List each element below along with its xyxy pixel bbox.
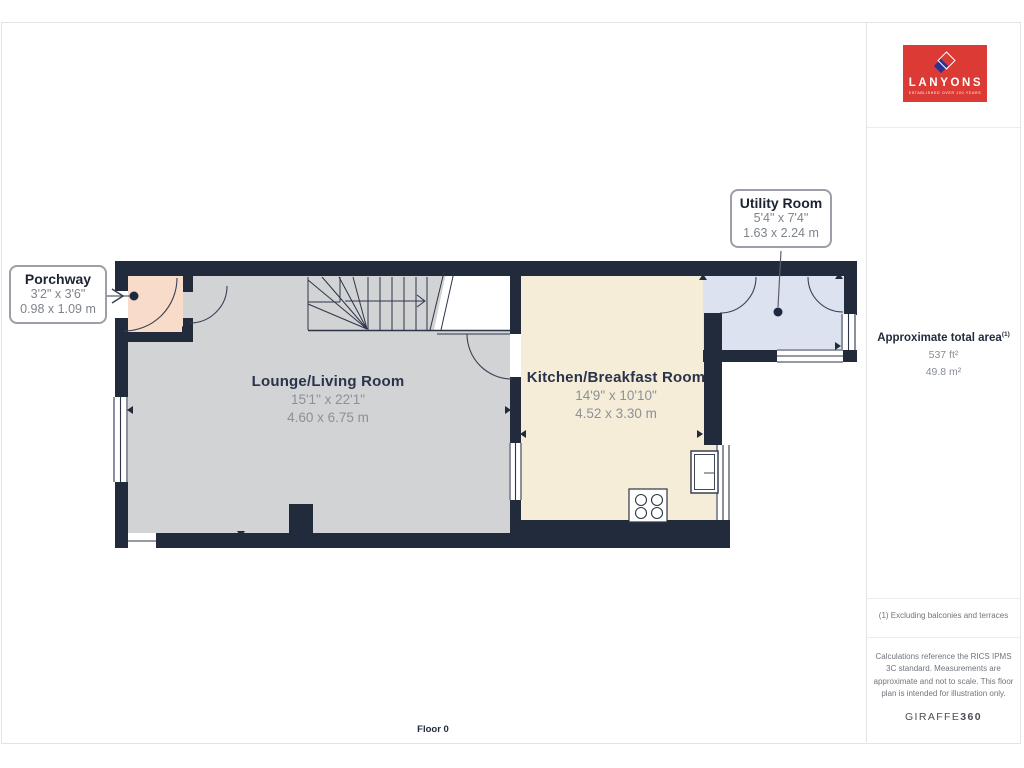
total-area-title: Approximate total area(1): [866, 331, 1021, 344]
disclaimer: Calculations reference the RICS IPMS 3C …: [873, 651, 1014, 701]
utility-wall: [843, 350, 857, 362]
stairs-void: [433, 272, 511, 331]
footnote: (1) Excluding balconies and terraces: [866, 611, 1021, 620]
callout-size-metric: 1.63 x 2.24 m: [734, 226, 828, 241]
room-name: Lounge/Living Room: [208, 373, 448, 390]
utility-wall: [703, 350, 777, 362]
total-area-ft: 537 ft²: [866, 349, 1021, 361]
callout-size-metric: 0.98 x 1.09 m: [13, 302, 103, 317]
porch-wall: [183, 272, 193, 292]
sidebar-divider: [866, 22, 867, 742]
room-size-metric: 4.52 x 3.30 m: [496, 406, 736, 422]
sidebar-rule-2: [867, 598, 1020, 599]
wall-left: [115, 482, 128, 548]
total-area-block: Approximate total area(1) 537 ft² 49.8 m…: [866, 331, 1021, 378]
callout-title: Utility Room: [734, 195, 828, 211]
callout-size-imperial: 5'4" x 7'4": [734, 211, 828, 226]
floor-label: Floor 0: [0, 724, 866, 735]
total-area-footnote-marker: (1): [1002, 331, 1010, 338]
lounge-kitchen-wall: [510, 271, 521, 334]
lounge-kitchen-wall: [510, 500, 521, 534]
giraffe360-brand: GIRAFFE360: [866, 711, 1021, 723]
wall-bottom: [510, 520, 730, 548]
room-name: Kitchen/Breakfast Room: [496, 369, 736, 386]
total-area-title-text: Approximate total area: [877, 332, 1002, 344]
wall-corner: [716, 520, 730, 535]
wall-bottom: [156, 533, 510, 548]
wall-stub: [289, 504, 313, 535]
porch-floor: [128, 276, 183, 332]
utility-room-callout: Utility Room 5'4" x 7'4" 1.63 x 2.24 m: [730, 189, 832, 248]
room-label-kitchen: Kitchen/Breakfast Room 14'9" x 10'10" 4.…: [496, 369, 736, 422]
giraffe-360: 360: [960, 711, 982, 723]
room-size-metric: 4.60 x 6.75 m: [208, 410, 448, 426]
giraffe-text: GIRAFFE: [905, 711, 960, 723]
wall-left: [115, 318, 128, 397]
total-area-m: 49.8 m²: [866, 366, 1021, 378]
utility-wall: [844, 261, 857, 315]
lanyons-logo: LANYONS ESTABLISHED OVER 100 YEARS: [903, 45, 987, 102]
wall-top: [115, 261, 857, 276]
wall-left: [115, 261, 128, 292]
callout-title: Porchway: [13, 271, 103, 287]
callout-size-imperial: 3'2" x 3'6": [13, 287, 103, 302]
sidebar-rule-1: [867, 127, 1020, 128]
room-size-imperial: 15'1" x 22'1": [208, 392, 448, 408]
room-size-imperial: 14'9" x 10'10": [496, 388, 736, 404]
room-label-lounge: Lounge/Living Room 15'1" x 22'1" 4.60 x …: [208, 373, 448, 426]
porch-wall: [115, 332, 193, 342]
porchway-callout: Porchway 3'2" x 3'6" 0.98 x 1.09 m: [9, 265, 107, 324]
lanyons-diamond-icon: [933, 53, 957, 75]
logo-text: LANYONS: [909, 77, 983, 89]
sidebar-rule-3: [867, 637, 1020, 638]
utility-floor: [703, 276, 855, 350]
logo-tagline: ESTABLISHED OVER 100 YEARS: [909, 91, 982, 95]
floorplan-page: Lounge/Living Room 15'1" x 22'1" 4.60 x …: [0, 0, 1024, 768]
